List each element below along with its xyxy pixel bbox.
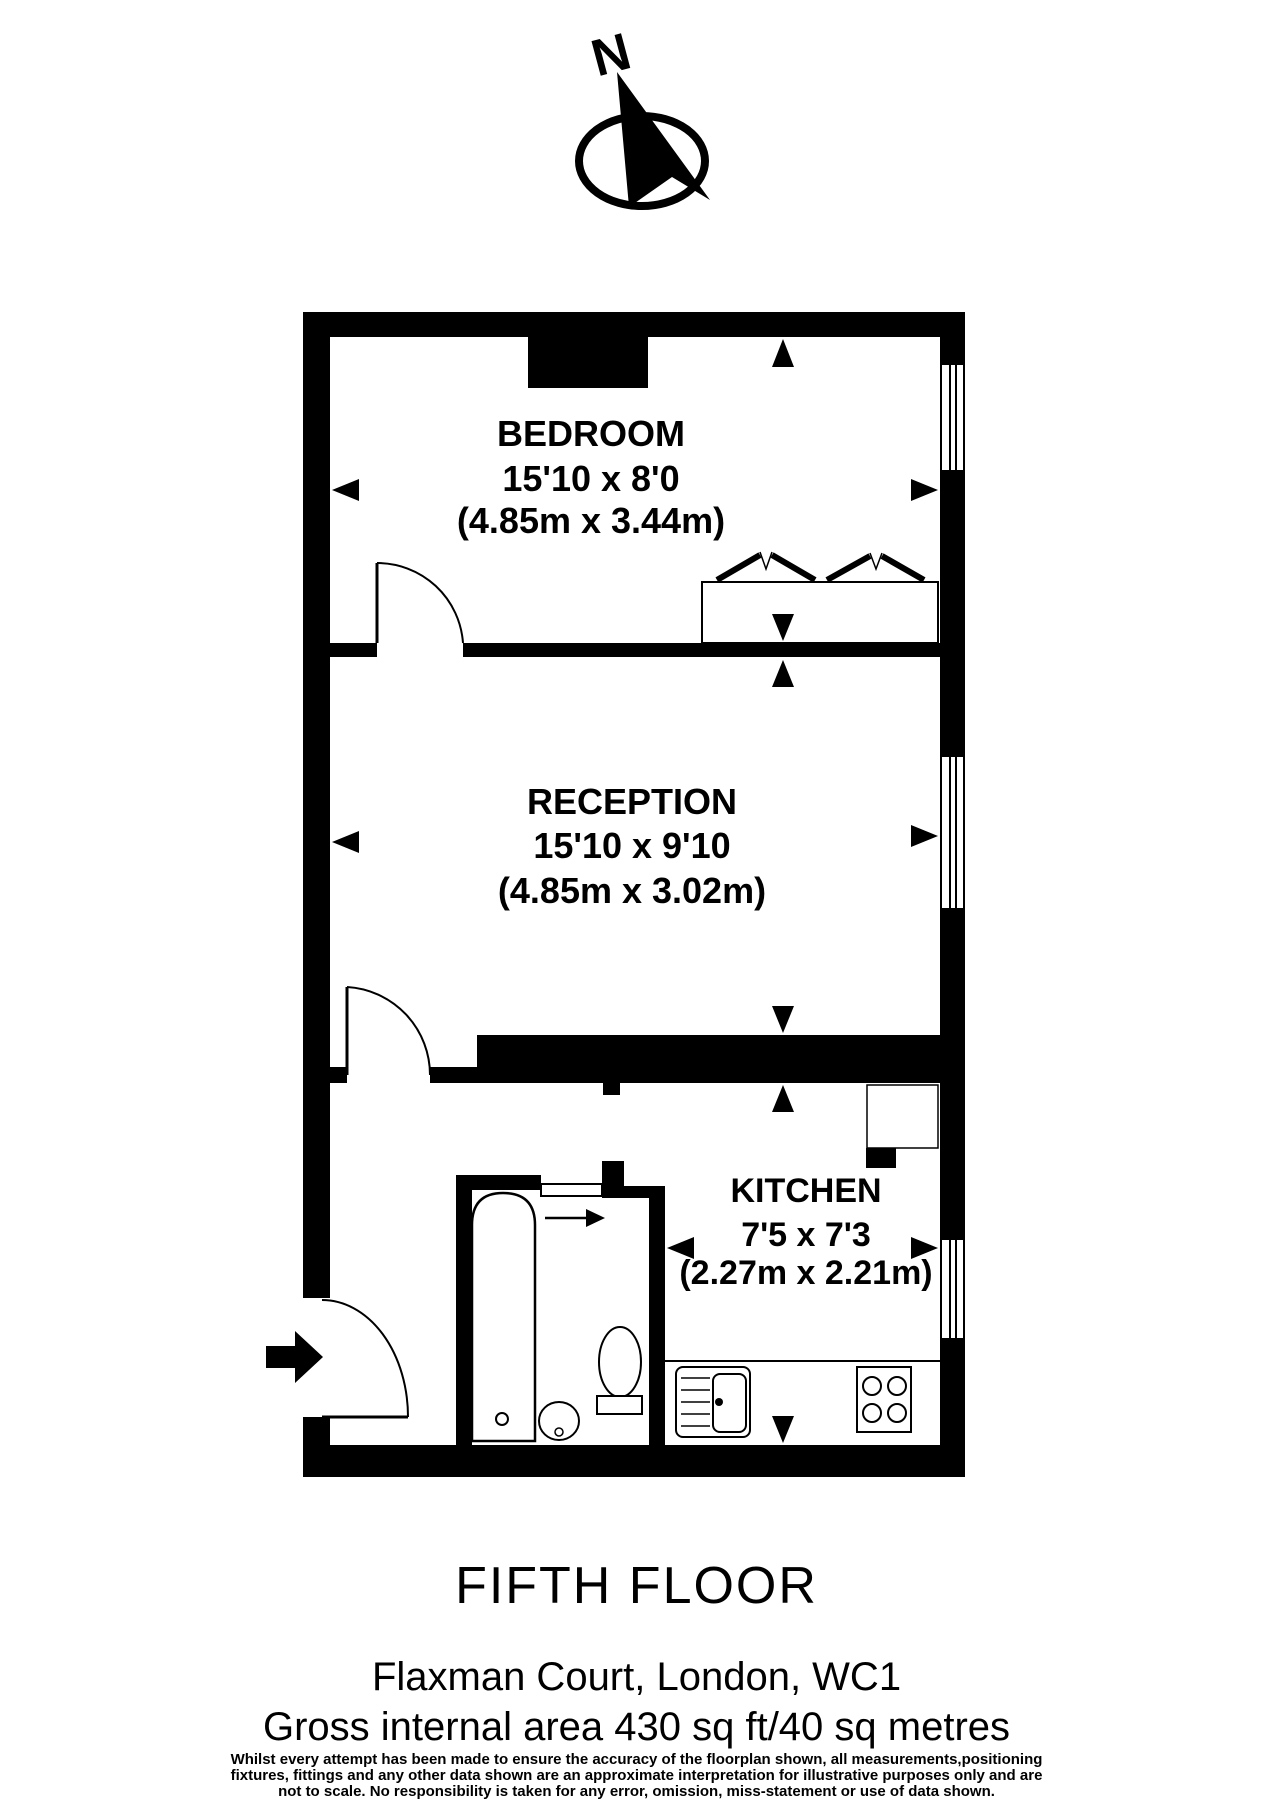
kitchen-size-imperial: 7'5 x 7'3 [741, 1216, 871, 1254]
wall-kitchen-divider-a [330, 1067, 347, 1083]
room-labels: BEDROOM 15'10 x 8'0 (4.85m x 3.44m) RECE… [457, 413, 933, 1292]
wall-bedroom-divider-left [330, 643, 377, 657]
wall-bathroom-right [649, 1186, 665, 1445]
wall-right-seg3 [940, 908, 965, 1240]
wall-top [303, 312, 965, 337]
reception-door-icon [347, 987, 430, 1075]
kitchen-sink-icon [676, 1367, 750, 1437]
dimension-arrow-icon [332, 479, 359, 501]
dimension-arrow-icon [911, 825, 938, 847]
reception-size-metric: (4.85m x 3.02m) [498, 870, 766, 911]
compass-north-label: N [586, 23, 637, 89]
worktop-icon [867, 1085, 938, 1148]
disclaimer-line: not to scale. No responsibility is taken… [0, 1784, 1273, 1800]
interior-walls [330, 643, 940, 1445]
north-compass-icon: N [579, 23, 710, 207]
dimension-arrow-icon [911, 479, 938, 501]
floorplan-page: N [0, 0, 1273, 1800]
wall-right-seg2 [940, 470, 965, 757]
sliding-door-icon [541, 1184, 605, 1227]
disclaimer-line: fixtures, fittings and any other data sh… [0, 1768, 1273, 1784]
window-icon [941, 1240, 964, 1338]
wall-bottom [303, 1445, 965, 1477]
wall-bedroom-divider-right [463, 643, 940, 657]
kitchen-label: KITCHEN [730, 1172, 881, 1210]
floorplan-drawing: N [0, 0, 1273, 1800]
property-address: Flaxman Court, London, WC1 [0, 1655, 1273, 1700]
hob-icon [857, 1367, 911, 1432]
bedroom-label: BEDROOM [497, 413, 685, 454]
dimension-arrow-icon [772, 339, 794, 367]
wall-left-upper [303, 312, 330, 1298]
toilet-icon [597, 1327, 642, 1414]
floor-title: FIFTH FLOOR [0, 1556, 1273, 1616]
wall-right-seg4 [940, 1338, 965, 1477]
wall-right-seg1 [940, 312, 965, 365]
bedroom-door-icon [377, 563, 463, 643]
dimension-arrow-icon [772, 1085, 794, 1112]
wall-kitchen-pier [866, 1148, 896, 1168]
entrance-door-icon [322, 1300, 408, 1417]
bath-icon [472, 1193, 535, 1441]
wall-kitchen-divider-stub [603, 1083, 620, 1095]
chimney-breast [528, 337, 648, 388]
bed-icon [702, 552, 938, 643]
disclaimer: Whilst every attempt has been made to en… [0, 1752, 1273, 1800]
disclaimer-line: Whilst every attempt has been made to en… [0, 1752, 1273, 1768]
wall-bathroom-stub [602, 1161, 624, 1186]
window-icon [941, 757, 964, 908]
entrance-arrow-icon [266, 1331, 323, 1383]
wall-kitchen-divider-b [430, 1067, 477, 1083]
bedroom-size-metric: (4.85m x 3.44m) [457, 500, 725, 541]
dimension-arrow-icon [772, 614, 794, 641]
dimension-arrow-icon [332, 831, 359, 853]
window-icon [941, 365, 964, 470]
wall-bathroom-left [456, 1175, 472, 1445]
dimension-arrow-icon [772, 1006, 794, 1033]
reception-size-imperial: 15'10 x 9'10 [533, 825, 730, 866]
basin-icon [539, 1402, 579, 1440]
dimension-arrow-icon [772, 660, 794, 687]
kitchen-size-metric: (2.27m x 2.21m) [679, 1254, 932, 1292]
bedroom-size-imperial: 15'10 x 8'0 [502, 458, 679, 499]
gross-internal-area: Gross internal area 430 sq ft/40 sq metr… [0, 1705, 1273, 1750]
dimension-arrow-icon [772, 1416, 794, 1443]
reception-label: RECEPTION [527, 781, 737, 822]
wall-kitchen-divider-c [477, 1035, 940, 1083]
